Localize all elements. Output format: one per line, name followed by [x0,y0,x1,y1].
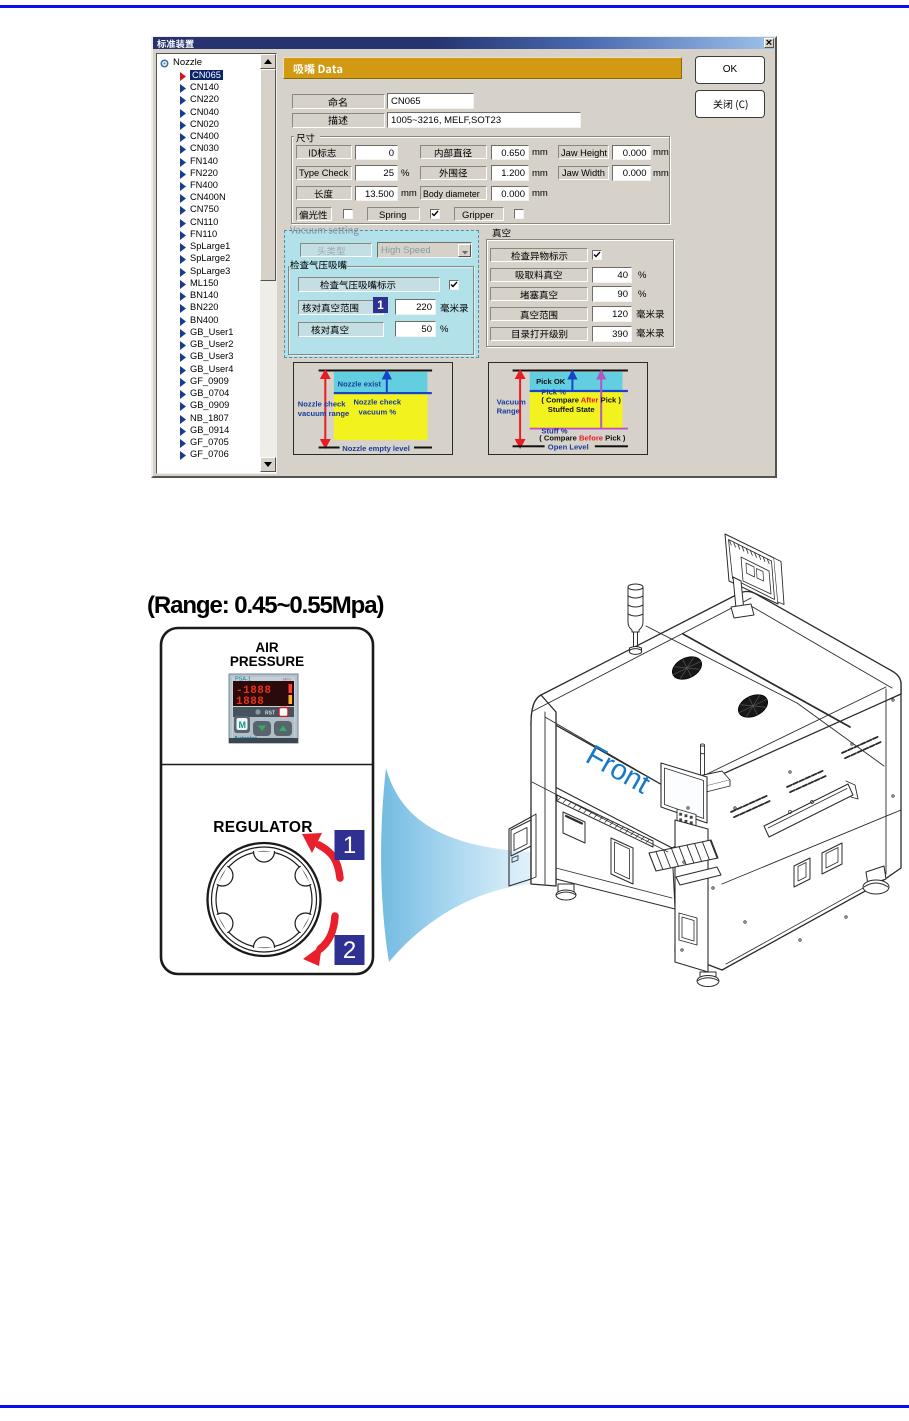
svg-text:Open Level: Open Level [548,442,589,451]
svg-text:PRESSURE: PRESSURE [230,654,304,669]
svg-text:( Compare Before Pick ): ( Compare Before Pick ) [539,433,626,442]
svg-text:2: 2 [343,937,356,964]
svg-text:(Range: 0.45~0.55Mpa): (Range: 0.45~0.55Mpa) [147,592,383,619]
svg-text:Nozzle exist: Nozzle exist [337,379,381,388]
svg-text:M: M [239,720,247,730]
svg-text:AIR: AIR [255,640,279,655]
svg-text:RST: RST [265,711,275,717]
svg-text:Nozzle check: Nozzle check [298,399,346,408]
svg-text:Range: Range [497,406,520,415]
svg-text:1: 1 [343,832,356,859]
svg-text:Stuffed State: Stuffed State [548,405,595,414]
svg-text:REGULATOR: REGULATOR [213,819,312,836]
svg-text:Pick OK: Pick OK [536,376,566,385]
svg-text:1888: 1888 [236,696,264,708]
svg-text:( Compare After Pick ): ( Compare After Pick ) [541,395,621,404]
svg-text:Nozzle empty level: Nozzle empty level [342,443,410,452]
svg-text:Vacuum: Vacuum [497,397,526,406]
svg-text:vacuum %: vacuum % [358,407,396,416]
svg-text:Nozzle check: Nozzle check [353,397,401,406]
svg-text:MPa: MPa [283,677,292,682]
svg-text:vacuum range: vacuum range [298,409,350,418]
